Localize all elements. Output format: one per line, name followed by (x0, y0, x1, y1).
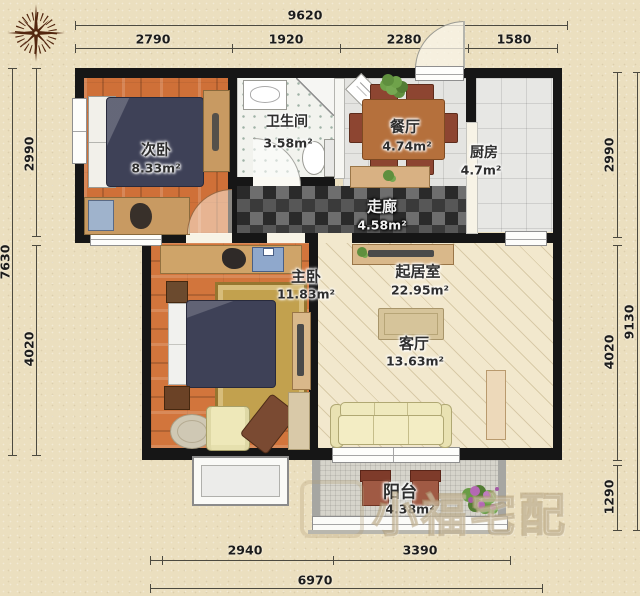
room-label-dining: 餐厅 (390, 116, 420, 137)
door-opening-second-bedroom (186, 233, 232, 243)
dim-tick (468, 44, 469, 53)
wardrobe-second-bedroom (203, 90, 230, 172)
tv-living (368, 250, 434, 257)
dim-tick (232, 44, 233, 53)
dim-tick (613, 530, 622, 531)
printer-second-bedroom (88, 200, 114, 231)
dim-tick (32, 245, 41, 246)
dim-top-seg-3: 2280 (387, 32, 422, 47)
side-table-master (164, 386, 190, 410)
cabinet-living-east (486, 370, 506, 440)
dim-line-right-total (637, 72, 638, 530)
watermark-text: 小福宅配 (372, 479, 568, 545)
dim-tick (32, 236, 41, 237)
nightstand-top (166, 281, 188, 303)
bay-window-master (192, 456, 289, 506)
sliding-door-balcony (332, 447, 460, 463)
sink (243, 80, 287, 110)
floor-corridor (237, 186, 466, 233)
room-area-kitchen: 4.7m² (461, 163, 502, 178)
plant-dining (382, 74, 394, 86)
dim-line-bottom-total (150, 588, 543, 589)
room-label-lounge: 客厅 (399, 333, 429, 354)
dim-tick (150, 584, 151, 593)
room-label-master-bedroom: 主卧 (291, 266, 321, 287)
room-label-second-bedroom: 次卧 (141, 139, 171, 160)
dim-right-seg-3: 1290 (602, 480, 617, 515)
wall-bath-dining-divider (334, 78, 345, 179)
dim-top-seg-4: 1580 (497, 32, 532, 47)
room-area-lounge: 13.63m² (386, 354, 444, 369)
dim-right-seg-2: 4020 (602, 335, 617, 370)
bed-master (186, 300, 276, 388)
shirt-on-wardrobe (252, 247, 284, 272)
dim-tick (8, 68, 17, 69)
dim-tick (613, 460, 622, 461)
dim-tick (75, 21, 76, 30)
wall-kitchen-west (466, 78, 476, 122)
dim-right-total: 9130 (622, 305, 637, 340)
dim-tick (613, 465, 622, 466)
dim-top-seg-2: 1920 (269, 32, 304, 47)
dim-tick (340, 44, 341, 53)
dim-tick (150, 556, 151, 565)
window-kitchen-south (505, 231, 547, 246)
plant-sideboard (383, 170, 394, 181)
room-area-dining: 4.74m² (382, 139, 431, 154)
dim-line-right-seg1 (617, 72, 618, 237)
dim-tick (613, 72, 622, 73)
compass-icon (6, 3, 66, 63)
room-label-living: 起居室 (395, 261, 440, 282)
dim-tick (542, 584, 543, 593)
dim-tick (333, 556, 334, 565)
room-area-living: 22.95m² (391, 283, 449, 298)
dim-tick (162, 556, 163, 565)
room-label-corridor: 走廊 (367, 196, 397, 217)
dim-tick (510, 556, 511, 565)
dim-top-total: 9620 (288, 8, 323, 23)
plant-console (357, 247, 367, 257)
room-label-kitchen: 厨房 (470, 142, 498, 162)
room-area-second-bedroom: 8.33m² (131, 161, 180, 176)
dim-left-total: 7630 (0, 245, 13, 280)
entrance-door (415, 66, 464, 81)
dim-tick (8, 455, 17, 456)
dim-line-right-seg2 (617, 245, 618, 460)
dim-tick (32, 455, 41, 456)
desk-chair-second (130, 203, 152, 229)
opening-corridor-living (318, 233, 352, 243)
dim-line-bottom-segments (150, 560, 510, 561)
dim-tick (75, 44, 76, 53)
wall-bath-south-b (300, 177, 335, 186)
toilet-tank (324, 139, 335, 177)
room-label-bathroom: 卫生间 (266, 111, 308, 131)
dim-bottom-total: 6970 (298, 573, 333, 588)
window-second-bedroom-west (72, 98, 87, 164)
dim-left-seg-2: 4020 (22, 332, 37, 367)
wall-top (75, 68, 562, 78)
door-opening-kitchen (466, 122, 478, 234)
room-area-bathroom: 3.58m² (263, 136, 312, 151)
dim-line-top-total (75, 25, 568, 26)
dim-right-seg-1: 2990 (602, 138, 617, 173)
mat-master (288, 392, 310, 450)
dim-line-right-seg3 (617, 465, 618, 530)
dim-tick (613, 245, 622, 246)
dim-tick (633, 72, 640, 73)
room-area-master-bedroom: 11.83m² (277, 287, 335, 302)
room-area-corridor: 4.58m² (357, 218, 406, 233)
dim-tick (557, 44, 558, 53)
wall-right (553, 68, 562, 460)
floor-plan: 次卧 8.33m² 卫生间 3.58m² 餐厅 4.74m² 厨房 4.7m² … (0, 0, 640, 596)
door-opening-master-bedroom (267, 233, 305, 243)
dim-tick (32, 68, 41, 69)
sofa-seat (338, 415, 444, 445)
watermark-logo (300, 480, 364, 538)
dim-line-top-segments (75, 48, 558, 49)
dim-tick (613, 237, 622, 238)
tv-master (297, 324, 304, 376)
dim-tick (633, 530, 640, 531)
wall-bath-south-a (237, 177, 253, 186)
dim-tick (567, 21, 568, 30)
wall-master-west (142, 233, 151, 460)
entrance-door-arc (415, 21, 465, 69)
dim-bottom-seg-1: 2940 (228, 543, 263, 558)
dim-left-seg-1: 2990 (22, 137, 37, 172)
dim-top-seg-1: 2790 (136, 32, 171, 47)
jacket-on-wardrobe (222, 248, 246, 269)
